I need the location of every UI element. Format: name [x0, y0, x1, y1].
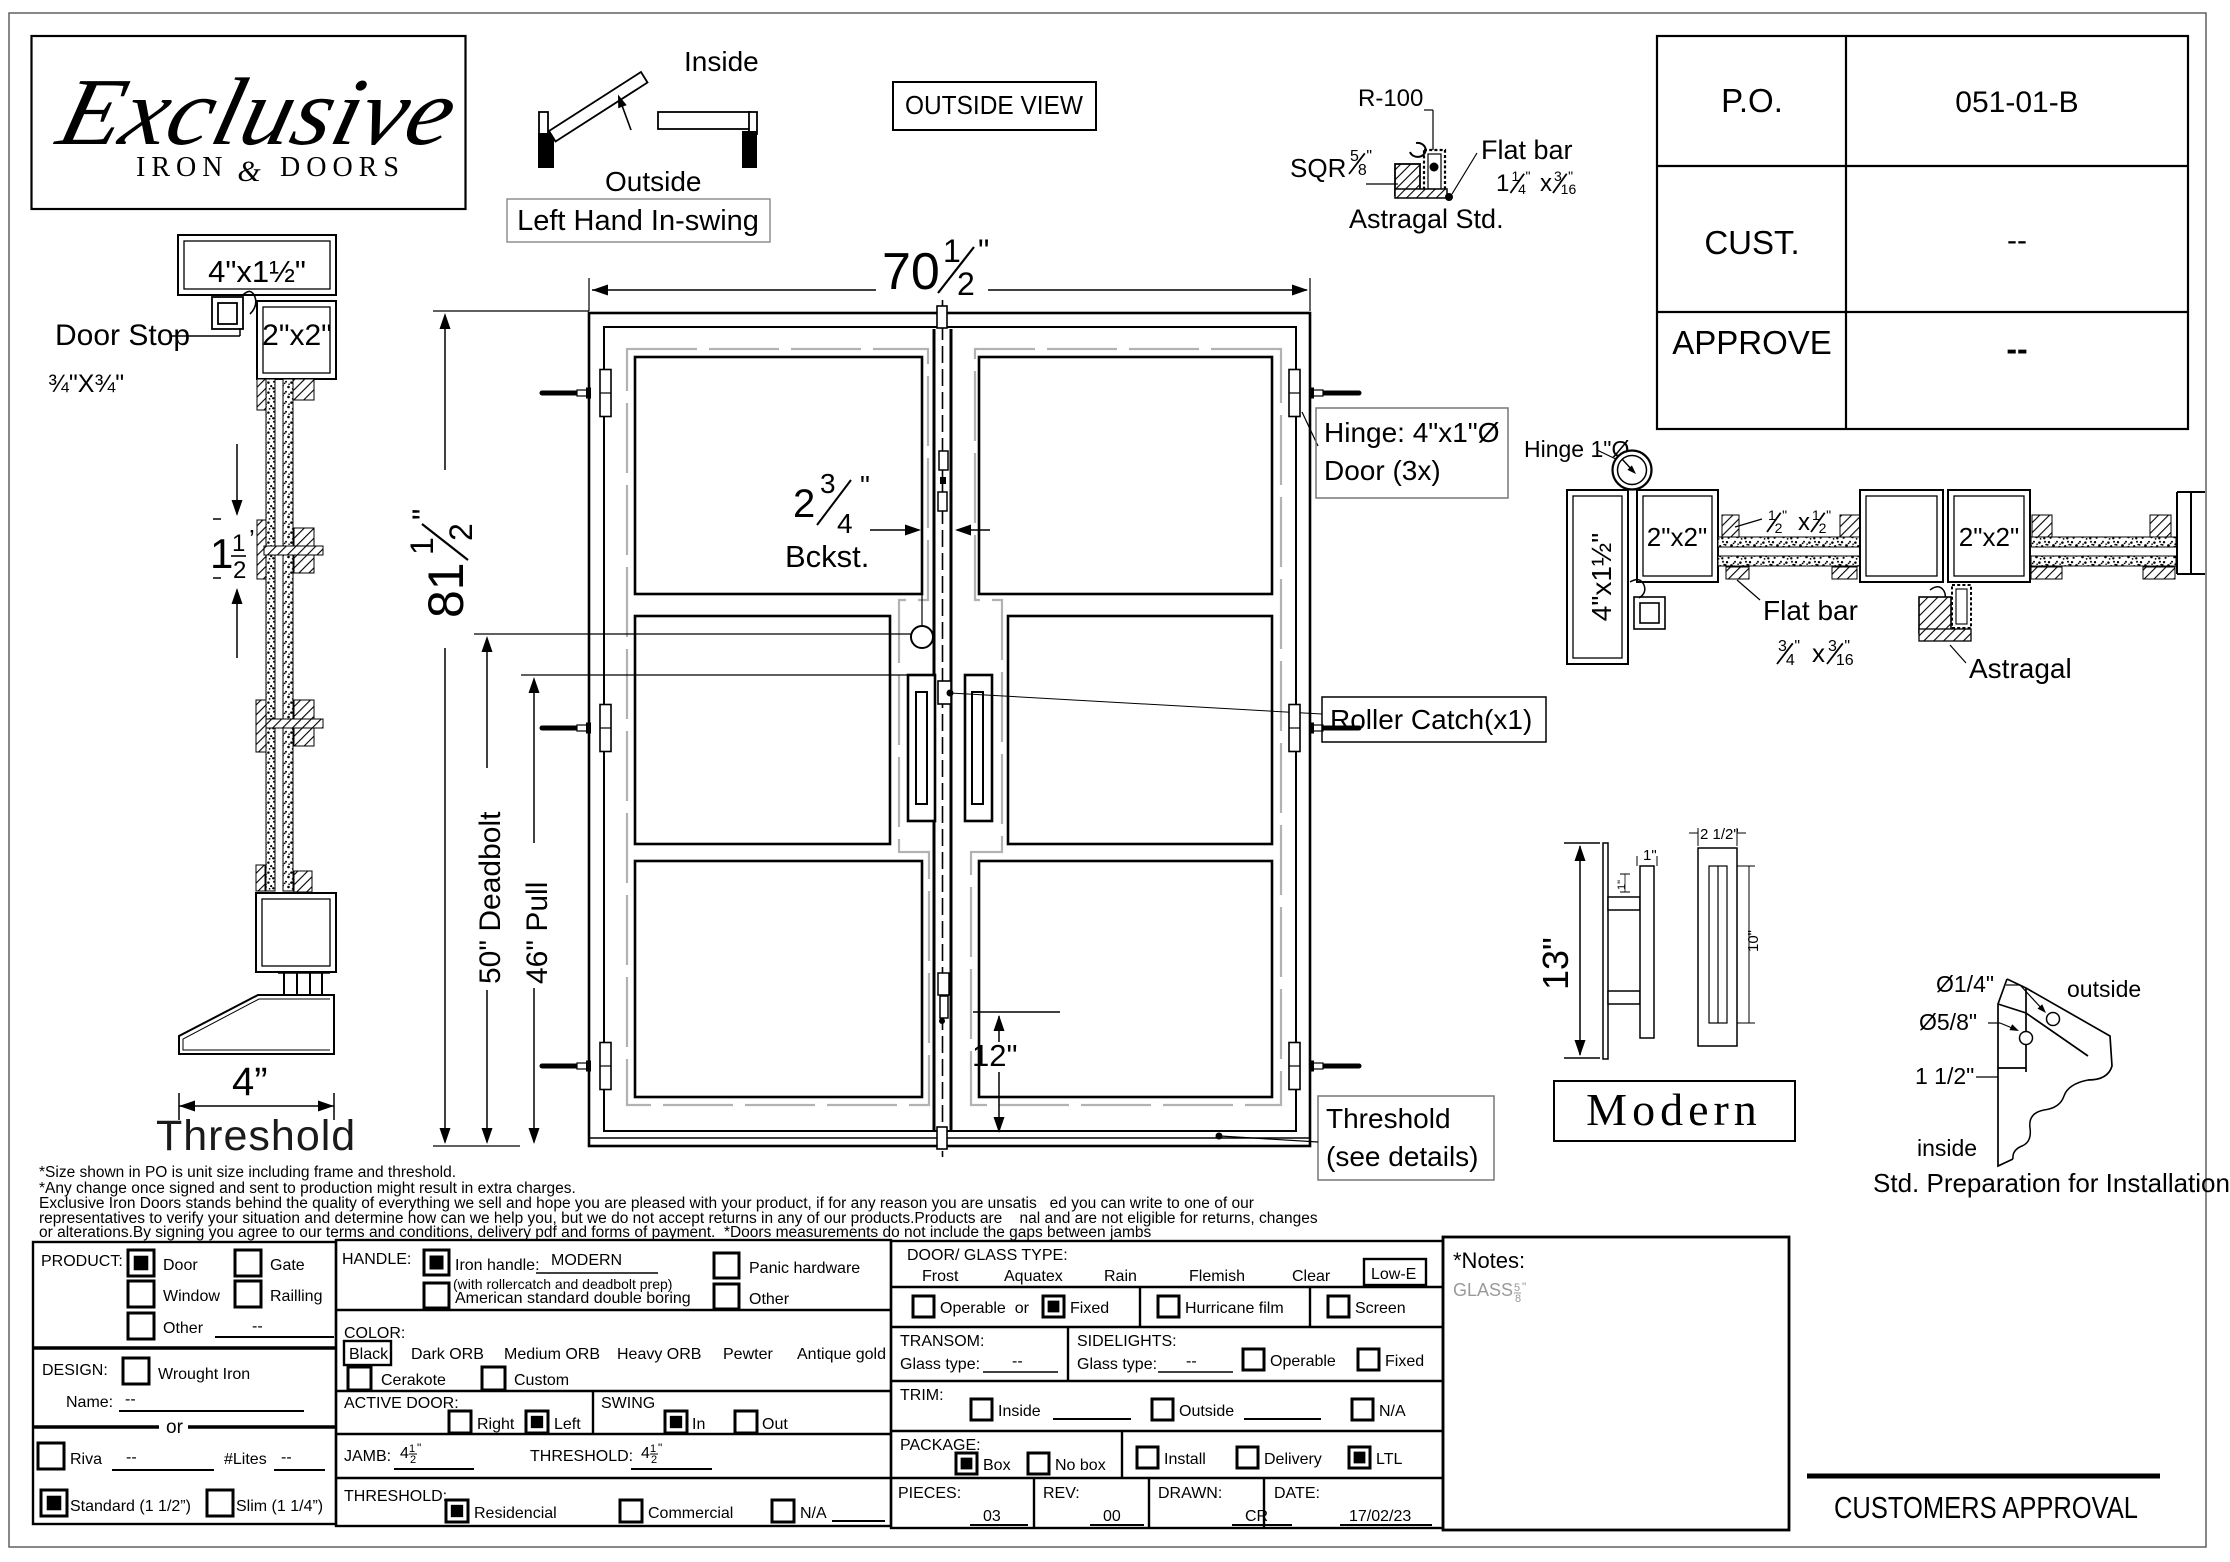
svg-text:REV:: REV: — [1043, 1485, 1080, 1502]
svg-text:PRODUCT:: PRODUCT: — [41, 1253, 123, 1270]
svg-text:": " — [658, 1441, 662, 1455]
svg-text:Window: Window — [163, 1288, 220, 1305]
svg-text:HANDLE:: HANDLE: — [342, 1251, 411, 1268]
svg-text:Outside: Outside — [1179, 1403, 1234, 1420]
svg-text:N/A: N/A — [1379, 1403, 1406, 1420]
svg-text:TRIM:: TRIM: — [900, 1387, 944, 1404]
svg-text:*Notes:: *Notes: — [1453, 1248, 1525, 1273]
svg-text:2: 2 — [793, 482, 815, 526]
svg-text:--: -- — [126, 1449, 137, 1466]
svg-text:Left Hand In-swing: Left Hand In-swing — [517, 205, 759, 237]
svg-text:*Size shown in PO is unit size: *Size shown in PO is unit size including… — [39, 1164, 456, 1181]
svg-text:Threshold: Threshold — [156, 1112, 356, 1160]
svg-text:": " — [1826, 507, 1831, 523]
svg-text:Threshold: Threshold — [1326, 1103, 1451, 1134]
svg-text:--: -- — [1186, 1353, 1197, 1370]
svg-text:Rain: Rain — [1104, 1268, 1137, 1285]
svg-text:2"x2": 2"x2" — [262, 319, 332, 352]
svg-text:4"x1½": 4"x1½" — [208, 254, 306, 289]
svg-text:’: ’ — [249, 524, 255, 554]
svg-text:Antique gold: Antique gold — [797, 1346, 886, 1363]
svg-text:TRANSOM:: TRANSOM: — [900, 1333, 984, 1350]
svg-text:APPROVE: APPROVE — [1672, 324, 1832, 361]
svg-text:2"x2": 2"x2" — [1647, 522, 1707, 552]
svg-text:Delivery: Delivery — [1264, 1451, 1322, 1468]
svg-text:Commercial: Commercial — [648, 1505, 733, 1522]
svg-text:Flat bar: Flat bar — [1481, 135, 1573, 165]
svg-text:DOORS: DOORS — [280, 152, 405, 183]
svg-text:Pewter: Pewter — [723, 1346, 773, 1363]
svg-text:Dark ORB: Dark ORB — [411, 1346, 484, 1363]
svg-text:No box: No box — [1055, 1457, 1106, 1474]
svg-text:CUST.: CUST. — [1704, 224, 1799, 261]
svg-text:Astragal: Astragal — [1969, 653, 2072, 684]
svg-text:Modern: Modern — [1586, 1084, 1762, 1135]
svg-text:N/A: N/A — [800, 1505, 827, 1522]
svg-text:10": 10" — [1745, 930, 1762, 952]
svg-text:2: 2 — [957, 266, 975, 302]
svg-text:Standard (1 1/2”): Standard (1 1/2”) — [70, 1498, 191, 1515]
svg-text:Other: Other — [163, 1320, 204, 1337]
svg-text:2: 2 — [410, 1454, 416, 1466]
svg-text:Hinge: 4"x1"Ø: Hinge: 4"x1"Ø — [1324, 417, 1500, 448]
svg-text:PACKAGE:: PACKAGE: — [900, 1437, 981, 1454]
svg-text:Door (3x): Door (3x) — [1324, 455, 1441, 486]
svg-text:Flemish: Flemish — [1189, 1268, 1245, 1285]
svg-text:Railling: Railling — [270, 1288, 322, 1305]
svg-text:THRESHOLD:: THRESHOLD: — [530, 1448, 633, 1465]
svg-text:1: 1 — [404, 537, 440, 555]
svg-text:Heavy ORB: Heavy ORB — [617, 1346, 701, 1363]
svg-text:Inside: Inside — [998, 1403, 1041, 1420]
svg-text:2: 2 — [651, 1454, 657, 1466]
svg-text:PIECES:: PIECES: — [898, 1485, 961, 1502]
svg-text:or: or — [166, 1417, 184, 1438]
svg-text:#Lites: #Lites — [224, 1451, 267, 1468]
svg-text:Wrought Iron: Wrought Iron — [158, 1366, 250, 1383]
svg-text:": " — [1844, 638, 1850, 655]
svg-text:IRON: IRON — [136, 152, 228, 183]
svg-text:American standard double borin: American standard double boring — [455, 1290, 691, 1307]
svg-text:(see details): (see details) — [1326, 1141, 1479, 1172]
svg-text:8: 8 — [1515, 1293, 1521, 1305]
svg-text:¾"X¾": ¾"X¾" — [48, 370, 124, 398]
svg-text:Aquatex: Aquatex — [1004, 1268, 1063, 1285]
svg-text:Low-E: Low-E — [1371, 1266, 1416, 1283]
svg-text:Bckst.: Bckst. — [785, 539, 869, 574]
svg-text:Glass type:: Glass type: — [900, 1356, 980, 1373]
svg-text:P.O.: P.O. — [1721, 82, 1783, 119]
svg-text:--: -- — [281, 1449, 292, 1466]
svg-text:OUTSIDE VIEW: OUTSIDE VIEW — [905, 90, 1083, 120]
svg-text:03: 03 — [983, 1508, 1001, 1525]
svg-text:Door: Door — [163, 1257, 198, 1274]
svg-text:": " — [1794, 638, 1800, 655]
svg-text:Residencial: Residencial — [474, 1505, 557, 1522]
svg-text:Inside: Inside — [684, 46, 759, 77]
svg-text:Out: Out — [762, 1416, 788, 1433]
svg-text:LTL: LTL — [1376, 1451, 1402, 1468]
svg-text:Panic hardware: Panic hardware — [749, 1260, 860, 1277]
svg-text:": " — [406, 509, 442, 520]
svg-text:x: x — [1812, 638, 1825, 668]
svg-text:Custom: Custom — [514, 1372, 569, 1389]
svg-text:JAMB:: JAMB: — [344, 1448, 391, 1465]
svg-text:Frost: Frost — [922, 1268, 959, 1285]
svg-text:outside: outside — [2067, 976, 2141, 1002]
svg-text:00: 00 — [1103, 1508, 1121, 1525]
svg-text:": " — [1366, 148, 1372, 165]
svg-text:Install: Install — [1164, 1451, 1206, 1468]
svg-text:&: & — [237, 155, 261, 188]
svg-text:70: 70 — [882, 243, 940, 301]
svg-text:Gate: Gate — [270, 1257, 305, 1274]
svg-text:Riva: Riva — [70, 1451, 102, 1468]
svg-text:Outside: Outside — [605, 166, 702, 197]
svg-text:1": 1" — [1643, 847, 1657, 864]
svg-text:Cerakote: Cerakote — [381, 1372, 446, 1389]
svg-text:46" Pull: 46" Pull — [521, 882, 554, 984]
svg-text:Medium ORB: Medium ORB — [504, 1346, 600, 1363]
svg-text:4: 4 — [400, 1445, 409, 1462]
svg-text:Screen: Screen — [1355, 1300, 1406, 1317]
svg-text:Glass type:: Glass type: — [1077, 1356, 1157, 1373]
svg-text:Name:: Name: — [66, 1394, 113, 1411]
svg-text:051-01-B: 051-01-B — [1955, 86, 2078, 119]
svg-text:13": 13" — [1535, 937, 1576, 990]
svg-text:Exclusive: Exclusive — [46, 59, 467, 165]
svg-text:Ø5/8": Ø5/8" — [1919, 1009, 1977, 1035]
svg-text:Roller Catch(x1): Roller Catch(x1) — [1330, 704, 1532, 735]
svg-text:1: 1 — [1496, 170, 1509, 197]
svg-text:--: -- — [2007, 224, 2027, 257]
svg-text:1: 1 — [232, 530, 245, 557]
svg-text:1": 1" — [1616, 880, 1628, 890]
svg-text:": " — [1522, 1280, 1526, 1294]
svg-text:Fixed: Fixed — [1385, 1353, 1424, 1370]
svg-text:SWING: SWING — [601, 1395, 655, 1412]
svg-text:": " — [978, 233, 989, 269]
svg-text:--: -- — [1012, 1353, 1023, 1370]
svg-text:Std. Preparation for Installat: Std. Preparation for Installation — [1873, 1168, 2230, 1198]
svg-text:Slim (1 1/4”): Slim (1 1/4”) — [236, 1498, 323, 1515]
svg-text:or alterations.By signing you: or alterations.By signing you agree to o… — [39, 1224, 1152, 1241]
svg-text:12": 12" — [972, 1038, 1018, 1073]
svg-text:DATE:: DATE: — [1274, 1485, 1320, 1502]
svg-text:CR: CR — [1245, 1508, 1268, 1525]
svg-text:Fixed: Fixed — [1070, 1300, 1109, 1317]
svg-text:--: -- — [252, 1318, 263, 1335]
svg-text:2"x2": 2"x2" — [1959, 522, 2019, 552]
svg-text:x: x — [1540, 170, 1552, 197]
svg-text:DESIGN:: DESIGN: — [42, 1362, 108, 1379]
svg-text:Other: Other — [749, 1291, 790, 1308]
svg-text:SQR: SQR — [1290, 153, 1346, 183]
svg-text:2: 2 — [233, 557, 246, 584]
svg-text:Black: Black — [349, 1346, 389, 1363]
svg-text:Hurricane film: Hurricane film — [1185, 1300, 1284, 1317]
svg-text:inside: inside — [1917, 1135, 1977, 1161]
svg-text:Operable: Operable — [1270, 1353, 1336, 1370]
svg-text:GLASS: GLASS — [1453, 1280, 1513, 1300]
svg-text:Right: Right — [477, 1416, 515, 1433]
svg-text:1: 1 — [943, 233, 961, 269]
svg-text:ACTIVE DOOR:: ACTIVE DOOR: — [344, 1395, 459, 1412]
svg-text:4"x1½": 4"x1½" — [1586, 533, 1617, 621]
svg-text:Clear: Clear — [1292, 1268, 1331, 1285]
svg-text:": " — [1782, 507, 1787, 523]
svg-text:": " — [860, 470, 870, 501]
svg-text:x: x — [1798, 509, 1810, 536]
svg-text:DOOR/ GLASS TYPE:: DOOR/ GLASS TYPE: — [907, 1247, 1068, 1264]
svg-text:Astragal Std.: Astragal Std. — [1349, 204, 1504, 234]
svg-text:2: 2 — [443, 523, 479, 541]
svg-text:Door Stop: Door Stop — [55, 319, 190, 352]
svg-text:3: 3 — [820, 468, 836, 499]
svg-text:SIDELIGHTS:: SIDELIGHTS: — [1077, 1333, 1177, 1350]
svg-text:1: 1 — [210, 530, 233, 577]
svg-text:--: -- — [2006, 331, 2027, 367]
svg-text:Left: Left — [554, 1416, 581, 1433]
svg-text:": " — [1526, 168, 1531, 184]
svg-text:2 1/2": 2 1/2" — [1700, 826, 1739, 843]
svg-text:Flat bar: Flat bar — [1763, 595, 1858, 626]
svg-text:1 1/2": 1 1/2" — [1915, 1063, 1974, 1089]
svg-text:MODERN: MODERN — [551, 1252, 622, 1269]
svg-text:4”: 4” — [232, 1060, 268, 1104]
svg-text:--: -- — [125, 1391, 136, 1408]
svg-text:DRAWN:: DRAWN: — [1158, 1485, 1222, 1502]
svg-text:Iron handle:: Iron handle: — [455, 1257, 540, 1274]
svg-text:50" Deadbolt: 50" Deadbolt — [474, 811, 507, 984]
svg-text:4: 4 — [837, 508, 853, 539]
svg-text:Operable or: Operable or — [940, 1300, 1030, 1317]
svg-text:": " — [417, 1441, 421, 1455]
svg-text:R-100: R-100 — [1358, 85, 1423, 112]
svg-text:Ø1/4": Ø1/4" — [1936, 971, 1994, 997]
svg-text:81: 81 — [418, 562, 474, 618]
svg-text:In: In — [692, 1416, 705, 1433]
svg-text:17/02/23: 17/02/23 — [1349, 1508, 1411, 1525]
svg-text:": " — [1568, 168, 1573, 184]
svg-text:Box: Box — [983, 1457, 1011, 1474]
svg-text:THRESHOLD:: THRESHOLD: — [344, 1488, 447, 1505]
svg-text:COLOR:: COLOR: — [344, 1325, 405, 1342]
svg-text:4: 4 — [641, 1445, 650, 1462]
svg-text:CUSTOMERS APPROVAL: CUSTOMERS APPROVAL — [1834, 1490, 2138, 1525]
